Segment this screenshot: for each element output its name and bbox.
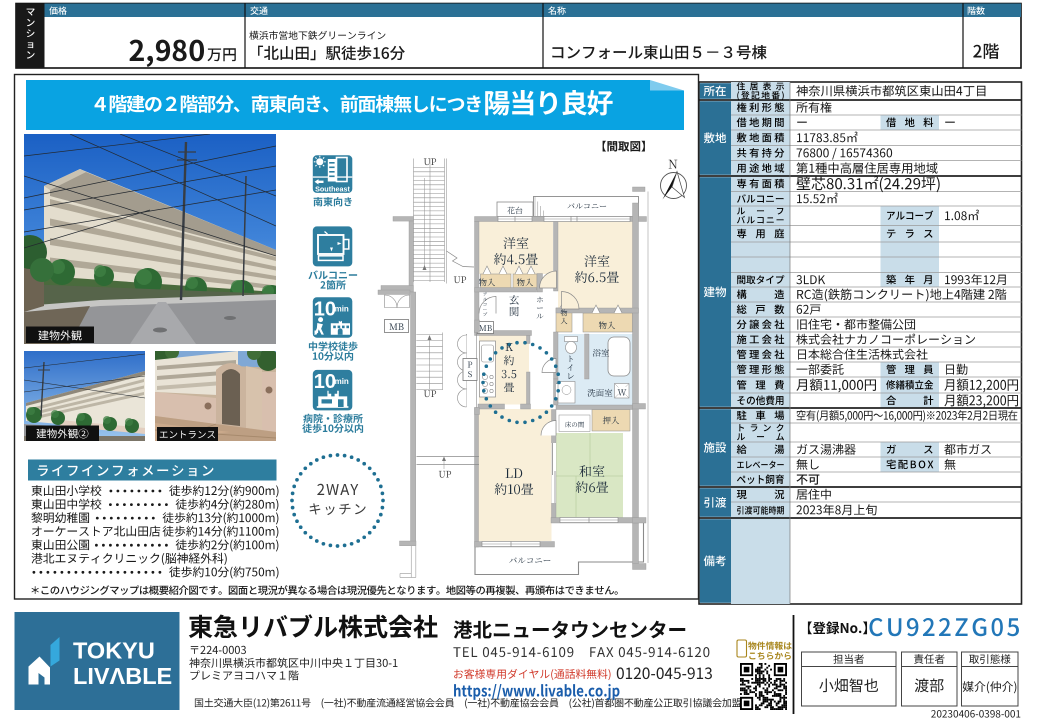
svg-text:min: min (335, 377, 349, 386)
svg-text:Southeast: Southeast (315, 184, 350, 193)
svg-text:10: 10 (314, 298, 336, 320)
svg-text:min: min (335, 304, 349, 313)
svg-text:TOKYU: TOKYU (73, 638, 155, 664)
svg-text:LIVΛBLE: LIVΛBLE (73, 663, 172, 689)
